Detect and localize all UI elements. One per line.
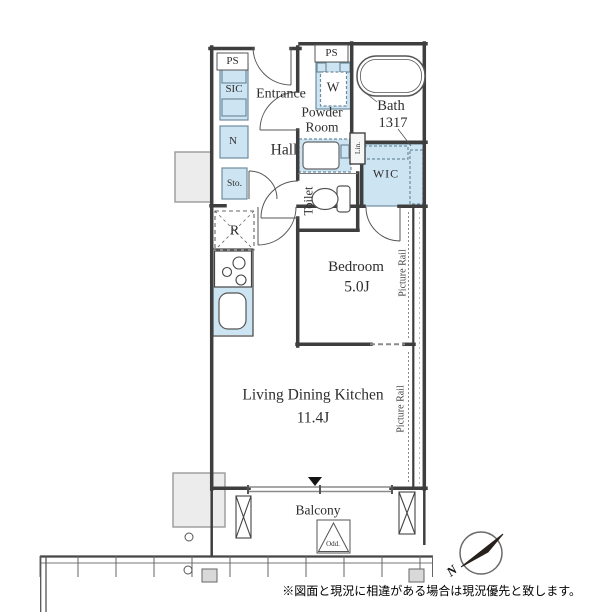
railing-post-right	[409, 569, 424, 582]
washer-label: W	[327, 81, 340, 96]
outdoor-unit-label: Odd.	[326, 541, 340, 549]
storage-door	[249, 171, 277, 199]
drain-cap-2	[184, 566, 192, 574]
bedroom-door	[366, 207, 400, 241]
kitchen-sink	[219, 293, 246, 329]
floor-plan: PS PS SIC Entrance W Powder Room Bath 13…	[0, 0, 605, 615]
bedroom-label: Bedroom	[328, 259, 384, 275]
toilet-bowl	[312, 186, 350, 212]
ldk-size-label: 11.4J	[297, 411, 330, 428]
picture-rail-ldk-label: Picture Rail	[397, 385, 408, 433]
common-area-blocks	[173, 152, 225, 527]
corridor-block-upper	[175, 152, 212, 202]
hall-ldk-door	[258, 207, 296, 245]
ldk-label: Living Dining Kitchen	[242, 388, 383, 405]
ps-left-label: PS	[226, 56, 238, 68]
disclaimer-note: ※図面と現況に相違がある場合は現況優先と致します。	[282, 582, 581, 599]
bath-dimension-label: 1317	[379, 116, 408, 132]
powder-room-line1: Powder	[301, 105, 342, 120]
bath-label: Bath	[377, 99, 404, 115]
ps-right-label: PS	[325, 48, 337, 60]
hall-label: Hall	[271, 143, 298, 160]
corridor-block-lower	[173, 473, 225, 527]
sic-label: SIC	[225, 84, 242, 96]
powder-room-line2: Room	[301, 120, 342, 135]
entry-direction-marker	[308, 477, 322, 486]
bedroom-size-label: 5.0J	[344, 280, 369, 297]
powder-room-label: Powder Room	[301, 105, 342, 134]
wic-label: WIC	[373, 168, 399, 181]
compass-icon	[460, 532, 503, 574]
n-closet-label: N	[229, 136, 237, 148]
storage-label: Sto.	[227, 179, 242, 189]
refrigerator-label: R	[230, 223, 239, 238]
entrance-door	[253, 47, 291, 85]
toilet-label: Toilet	[302, 187, 316, 216]
drain-cap-1	[185, 533, 193, 541]
shaft-wall	[413, 207, 419, 488]
ldk-window	[248, 477, 392, 494]
railing-post-left	[202, 569, 217, 582]
toilet-door	[261, 181, 298, 218]
wash-basin	[303, 142, 339, 169]
picture-rail-bedroom-label: Picture Rail	[399, 249, 410, 297]
entrance-label: Entrance	[256, 86, 306, 101]
balcony-label: Balcony	[296, 504, 341, 519]
linen-label: Lin.	[353, 142, 361, 154]
